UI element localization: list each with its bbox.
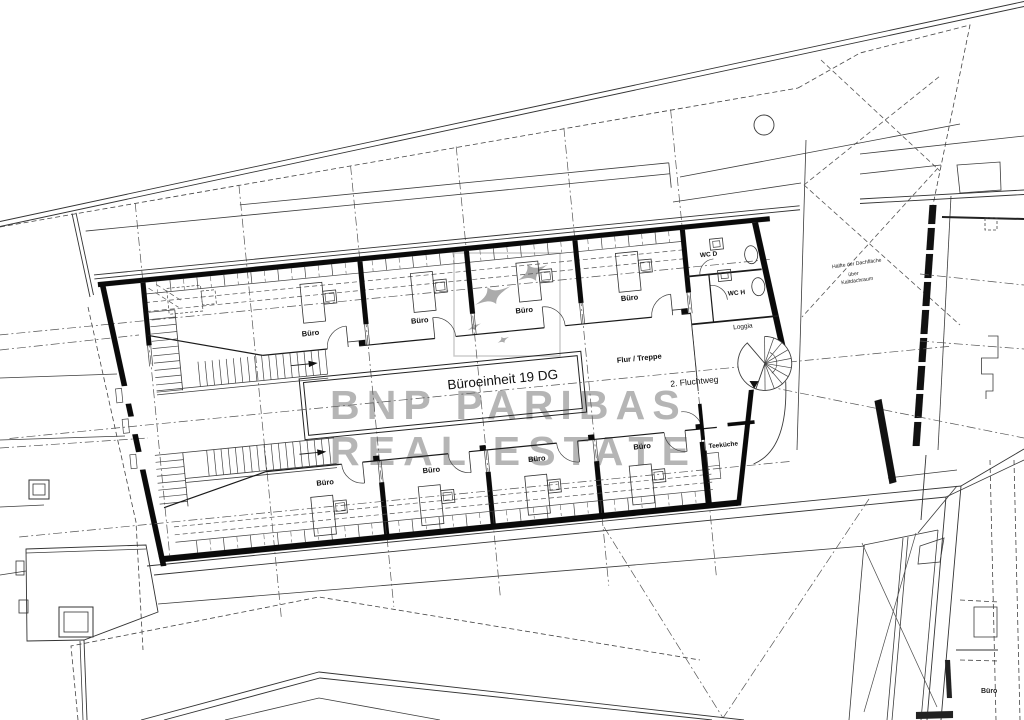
svg-text:Büro: Büro [301, 328, 320, 339]
svg-text:Büro: Büro [981, 688, 997, 695]
svg-text:Büro: Büro [422, 465, 441, 476]
svg-text:Büro: Büro [316, 477, 335, 488]
svg-text:Büro: Büro [633, 441, 652, 452]
svg-text:Büro: Büro [528, 453, 547, 464]
svg-text:BNP PARIBAS: BNP PARIBAS [330, 382, 687, 428]
svg-text:Büro: Büro [620, 292, 639, 303]
svg-text:Büro: Büro [515, 305, 534, 316]
svg-text:Büro: Büro [411, 315, 430, 326]
